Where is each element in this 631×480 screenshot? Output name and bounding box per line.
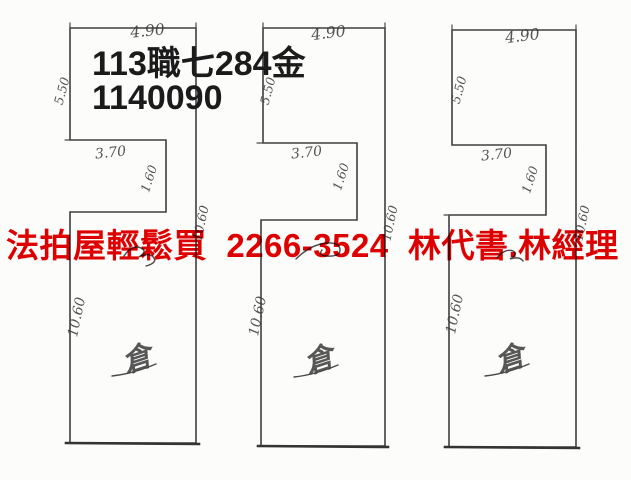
plan-bottom-edge xyxy=(445,447,579,448)
plan-bottom-edge xyxy=(258,446,388,447)
dim-notch-width: 3.70 xyxy=(290,143,323,162)
dim-notch-height: 1.60 xyxy=(518,164,541,195)
case-number: 1140090 xyxy=(92,81,306,115)
dim-top-width: 4.90 xyxy=(309,22,347,44)
room-label: 倉 xyxy=(300,337,343,380)
agent-watermark-text: 法拍屋輕鬆買 2266-3524 林代書.林經理 xyxy=(6,219,619,267)
dim-left-lower: 10.60 xyxy=(65,296,89,339)
dim-notch-height: 1.60 xyxy=(329,161,352,192)
dim-top-width: 4.90 xyxy=(503,25,541,47)
room-label: 倉 xyxy=(491,336,534,379)
dim-notch-height: 1.60 xyxy=(137,163,160,194)
case-label: 113職七284金 xyxy=(92,47,306,81)
dim-notch-width: 3.70 xyxy=(94,143,127,162)
corner-tick xyxy=(444,25,576,215)
dim-left-lower: 10.60 xyxy=(246,295,270,338)
dim-left-upper: 5.50 xyxy=(448,74,470,105)
room-label: 倉 xyxy=(118,336,161,379)
plan-bottom-edge xyxy=(66,443,199,444)
case-header: 113職七284金 1140090 xyxy=(92,47,306,115)
dim-notch-width: 3.70 xyxy=(480,145,513,164)
dim-top-width: 4.90 xyxy=(128,20,165,42)
scanned-survey-document: 4.90 5.50 3.70 1.60 10.60 10.60 倉 4.90 5… xyxy=(0,0,631,480)
dim-left-lower: 10.60 xyxy=(443,293,467,336)
